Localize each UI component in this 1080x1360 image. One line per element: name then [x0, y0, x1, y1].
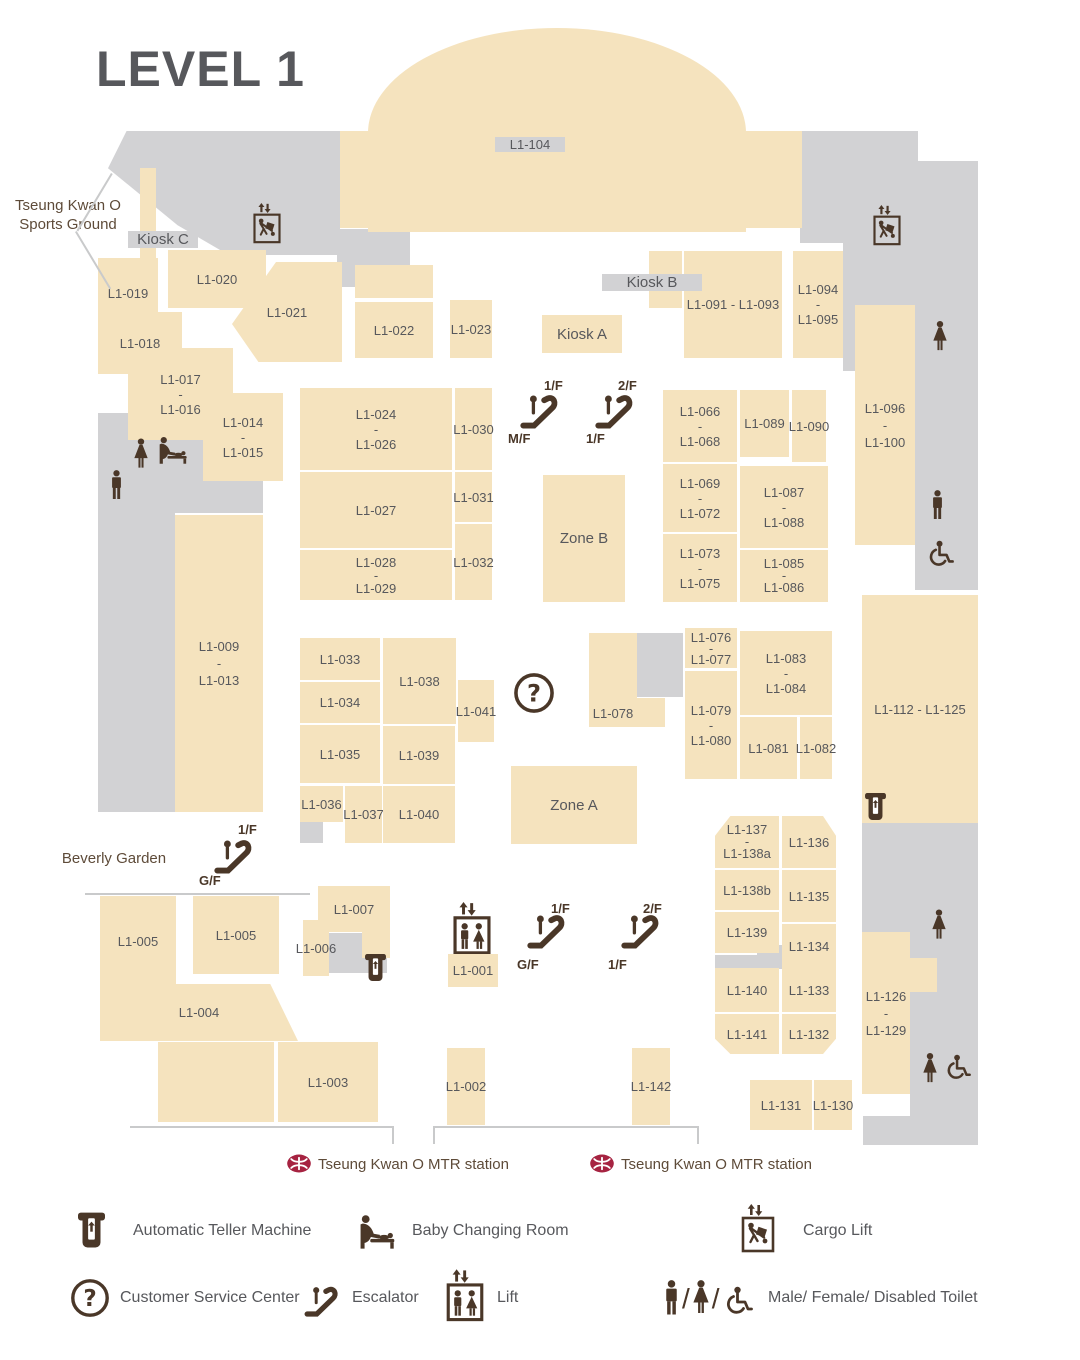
- unit-l1-091-093: L1-091 - L1-093: [684, 251, 782, 358]
- unit-l1-005-west: L1-005: [100, 896, 176, 986]
- atm-legend-icon: [78, 1210, 105, 1250]
- svg-text:?: ?: [527, 679, 541, 707]
- female-toilet-icon: [933, 320, 947, 351]
- unit-l1-096-100: L1-096-L1-100: [855, 305, 915, 545]
- unit-l1-089: L1-089: [740, 390, 789, 457]
- escalator-icon: [618, 912, 666, 950]
- svg-text:?: ?: [83, 1286, 96, 1312]
- unit-l1-134: L1-134: [782, 924, 836, 968]
- boundary-line: [433, 1126, 435, 1144]
- unit-l1-126-129-foot: [910, 958, 937, 992]
- mtr-logo-icon: [590, 1154, 614, 1173]
- unit-l1-140: L1-140: [715, 968, 779, 1012]
- unit-l1-138b: L1-138b: [715, 870, 779, 910]
- slash-separator: /: [712, 1282, 720, 1316]
- wheelchair-icon: [944, 1054, 971, 1081]
- male-toilet-icon: [931, 490, 944, 519]
- unit-l1-003: L1-003: [278, 1042, 378, 1122]
- unit-l1-022-upper: [355, 265, 433, 298]
- atm-icon: [365, 954, 386, 981]
- unit-l1-141: L1-141: [715, 1014, 779, 1054]
- unit-l1-032: L1-032: [455, 524, 492, 600]
- toilet-icons-group: //: [664, 1276, 753, 1316]
- cargo-lift-icon: [252, 198, 282, 248]
- female-toilet-icon: [693, 1280, 709, 1316]
- unit-l1-003-west: [158, 1042, 274, 1122]
- unit-l1-022: L1-022: [355, 302, 433, 358]
- customer-service-icon: ?: [513, 672, 555, 714]
- escalator-icon: [524, 912, 572, 950]
- unit-l1-078-foot: [637, 698, 665, 727]
- unit-l1-087-088: L1-087-L1-088: [740, 466, 828, 548]
- escalator-icon: [592, 392, 640, 430]
- female-toilet-icon: [932, 908, 946, 940]
- boundary-line: [697, 1126, 699, 1144]
- unit-l1-130: L1-130: [814, 1080, 852, 1130]
- unit-kiosk-a: Kiosk A: [542, 315, 622, 353]
- unit-l1-009-013: L1-009-L1-013: [175, 515, 263, 812]
- unit-l1-104: [340, 131, 802, 228]
- map-label: Sports Ground: [8, 216, 128, 233]
- gray-area: [300, 822, 323, 843]
- unit-l1-040: L1-040: [383, 786, 455, 843]
- gray-area: [862, 823, 978, 933]
- unit-l1-076-077: L1-076-L1-077: [685, 628, 737, 668]
- legend-label: Customer Service Center: [120, 1289, 300, 1307]
- unit-zone-b: Zone B: [543, 475, 625, 602]
- boundary-line: [433, 1126, 699, 1128]
- lift-icon: [452, 902, 492, 954]
- map-label: Beverly Garden: [55, 850, 173, 867]
- escalator-legend-icon: [302, 1284, 344, 1318]
- male-toilet-icon: [664, 1280, 679, 1316]
- legend-label: Cargo Lift: [803, 1222, 872, 1240]
- male-toilet-icon: [110, 470, 123, 499]
- wheelchair-icon: [926, 540, 954, 568]
- unit-l1-135: L1-135: [782, 870, 836, 922]
- floor-label: 1/F: [586, 431, 605, 446]
- unit-l1-136: L1-136: [782, 816, 836, 868]
- boundary-line: [392, 1126, 394, 1144]
- unit-l1-005: L1-005: [193, 896, 279, 974]
- unit-l1-030: L1-030: [455, 388, 492, 470]
- floor-label: 1/F: [608, 957, 627, 972]
- unit-l1-079-080: L1-079-L1-080: [685, 671, 737, 779]
- atm-icon: [865, 793, 886, 820]
- map-label: Kiosk C: [128, 231, 198, 248]
- unit-l1-078: L1-078: [589, 633, 637, 727]
- unit-l1-112-125: L1-112 - L1-125: [862, 595, 978, 823]
- baby-changing-icon: [156, 436, 188, 464]
- unit-l1-139: L1-139: [715, 912, 779, 953]
- wheelchair-icon: [723, 1286, 753, 1316]
- unit-l1-001: L1-001: [448, 954, 498, 987]
- cargo-lift-icon: [872, 200, 902, 250]
- unit-l1-081: L1-081: [740, 717, 797, 779]
- legend-label: Baby Changing Room: [412, 1222, 569, 1240]
- unit-zone-a: Zone A: [511, 766, 637, 844]
- unit-l1-126-129: L1-126-L1-129: [862, 932, 910, 1094]
- gray-area: [637, 633, 683, 697]
- question-legend-icon: ?: [70, 1278, 110, 1318]
- unit-l1-038: L1-038: [383, 638, 456, 724]
- mtr-logo-icon: [287, 1154, 311, 1173]
- map-label: Kiosk B: [602, 274, 702, 291]
- unit-l1-002: L1-002: [447, 1048, 485, 1125]
- cargo-legend-icon: [740, 1198, 776, 1258]
- unit-l1-094-095: L1-094-L1-095: [793, 251, 843, 358]
- floor-label: M/F: [508, 431, 530, 446]
- floor-label: 1/F: [551, 901, 570, 916]
- unit-l1-037: L1-037: [345, 786, 382, 843]
- unit-l1-024-026: L1-024-L1-026: [300, 388, 452, 470]
- unit-l1-039: L1-039: [383, 726, 455, 784]
- floor-label: G/F: [517, 957, 539, 972]
- boundary-line: [130, 1126, 394, 1128]
- unit-l1-069-072: L1-069-L1-072: [663, 464, 737, 532]
- unit-l1-082: L1-082: [800, 717, 832, 779]
- unit-l1-004: L1-004: [100, 984, 298, 1041]
- unit-l1-035: L1-035: [300, 725, 380, 783]
- unit-l1-142: L1-142: [632, 1048, 670, 1125]
- unit-l1-131: L1-131: [750, 1080, 812, 1130]
- unit-l1-014-015: L1-014-L1-015: [203, 393, 283, 481]
- female-toilet-icon: [134, 438, 148, 468]
- unit-l1-036: L1-036: [300, 786, 343, 822]
- floor-label: 2/F: [643, 901, 662, 916]
- floor-plan-page: LEVEL 1 L1-020L1-019L1-018L1-017-L1-016L…: [0, 0, 1080, 1360]
- unit-l1-006: L1-006: [303, 920, 329, 976]
- unit-l1-028-029: L1-028-L1-029: [300, 550, 452, 600]
- unit-l1-031: L1-031: [455, 472, 492, 522]
- unit-l1-090: L1-090: [792, 390, 826, 462]
- female-toilet-icon: [923, 1052, 937, 1083]
- unit-l1-132: L1-132: [782, 1014, 836, 1054]
- map-label: L1-104: [495, 137, 565, 152]
- boundary-line: [85, 893, 310, 895]
- map-label: Tseung Kwan O: [8, 197, 128, 214]
- floor-label: 1/F: [544, 378, 563, 393]
- unit-l1-066-068: L1-066-L1-068: [663, 390, 737, 462]
- floor-label: G/F: [199, 873, 221, 888]
- unit-l1-085-086: L1-085-L1-086: [740, 550, 828, 602]
- unit-l1-133: L1-133: [782, 968, 836, 1012]
- floor-label: 2/F: [618, 378, 637, 393]
- legend-label: Automatic Teller Machine: [133, 1222, 311, 1240]
- baby-legend-icon: [356, 1214, 396, 1249]
- slash-separator: /: [682, 1282, 690, 1316]
- unit-l1-083-084: L1-083-L1-084: [740, 631, 832, 715]
- unit-l1-137-138a: L1-137-L1-138a: [715, 816, 779, 868]
- escalator-icon: [211, 837, 259, 875]
- unit-l1-027: L1-027: [300, 472, 452, 548]
- gray-area: [863, 1116, 943, 1145]
- unit-l1-033: L1-033: [300, 638, 380, 680]
- gray-area: [98, 513, 175, 812]
- unit-l1-041: L1-041: [458, 680, 494, 742]
- legend-label: Male/ Female/ Disabled Toilet: [768, 1289, 978, 1307]
- floor-label: 1/F: [238, 822, 257, 837]
- unit-l1-023: L1-023: [450, 300, 492, 358]
- page-title: LEVEL 1: [96, 40, 305, 98]
- legend-label: Lift: [497, 1289, 518, 1307]
- legend-label: Escalator: [352, 1289, 419, 1307]
- escalator-icon: [517, 392, 565, 430]
- map-label: Tseung Kwan O MTR station: [621, 1156, 841, 1173]
- unit-l1-073-075: L1-073-L1-075: [663, 534, 737, 602]
- map-label: Tseung Kwan O MTR station: [318, 1156, 538, 1173]
- unit-l1-034: L1-034: [300, 682, 380, 723]
- lift-legend-icon: [446, 1266, 484, 1324]
